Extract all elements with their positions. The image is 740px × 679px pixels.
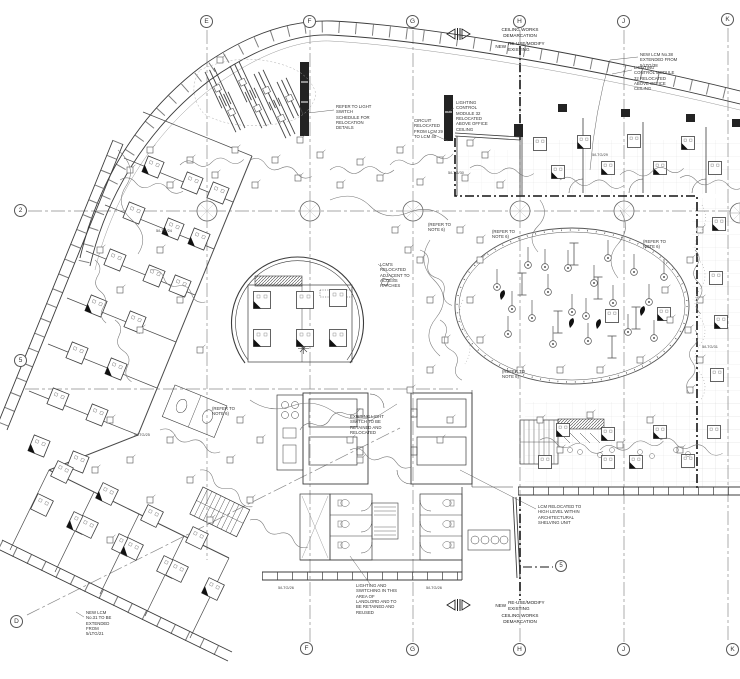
grid-bubble-bottom-j: J [617, 643, 630, 656]
floor-plan-sheet: E F G H J K F G H J K 2 5 D 5 CEILING WO… [0, 0, 740, 679]
note-new-lcm31: NEW LCM No.31 TO BE EXTENDED FROM 5/LTG/… [86, 610, 116, 637]
grid-bubble-top-k: K [721, 13, 734, 26]
circuit-label-g: 5/LTG/30 [448, 170, 464, 175]
grid-bubble-top-f: F [303, 15, 316, 28]
note-switch-schedule: REFER TO LIGHT SWITCH SCHEDULE FOR RELOC… [336, 104, 376, 131]
new-label: NEW [495, 44, 506, 49]
demarcation-title-bottom-2: DEMARCATION [503, 619, 537, 624]
note-lcm-office-left: LIGHTING CONTROL MODULE 32 RELOCATED ABO… [456, 100, 494, 132]
existing-label: EXISTING [508, 47, 545, 53]
note-landlord: LIGHTING AND SWITCHING IN THIS AREA OF L… [356, 583, 398, 615]
grid-bubble-bottom-g: G [406, 643, 419, 656]
circuit-label-a: 5/LTG/29 [592, 152, 608, 157]
grid-bubble-bottom-f: F [300, 642, 313, 655]
facade-west-wing [0, 140, 232, 661]
demarcation-arrows-icon [445, 27, 471, 41]
demarcation-title-2: DEMARCATION [503, 33, 537, 38]
circuit-label-f: 5/LTG/25 [134, 432, 150, 437]
circuit-label-b: 5/LTG/26 [278, 585, 294, 590]
circuit-wiring [92, 150, 740, 550]
floor-plan-svg [0, 0, 740, 679]
linear-fixtures-cluster [194, 59, 316, 138]
note-existing-switch: EXISTING LIGHT SWITCH TO BE RETAINED AND… [350, 414, 384, 435]
note-refer6-2: (REFER TO NOTE 6) [492, 229, 524, 240]
note-refer6-4: (REFER TO NOTE 6) [502, 369, 534, 380]
note-lcm-shelving: LCM RELOCATED TO HIGH LEVEL WITHIN ARCHI… [538, 504, 584, 525]
grid-bubble-bottom-k: K [726, 643, 739, 656]
circuit-label-d: 5/LTG/24 [156, 228, 172, 233]
circuit-label-e: 5/LTG/31 [702, 344, 718, 349]
note-refer6-3: (REFER TO NOTE 6) [643, 239, 675, 250]
section-marker-5: 5 [555, 560, 567, 572]
grid-bubble-top-g: G [406, 15, 419, 28]
reuse-label: RE-USE/MODIFY [508, 41, 545, 46]
drum-room-luminaires [254, 290, 347, 347]
note-lcms-hatches: LCM'S RELOCATED ADJACENT TO ACCESS HATCH… [380, 262, 414, 289]
grid-bubble-top-j: J [617, 15, 630, 28]
circuit-label-c: 5/LTG/26 [426, 585, 442, 590]
drum-room [232, 257, 364, 363]
grid-bubble-left-5: 5 [14, 354, 27, 367]
toilets [300, 390, 513, 560]
existing-label-bottom: EXISTING [508, 606, 545, 612]
demarcation-title-bottom: CEILING WORKS [501, 613, 538, 618]
demarcation-bottom: NEW RE-USE/MODIFY EXISTING CEILING WORKS… [445, 598, 595, 625]
demarcation-arrows-icon-bottom [445, 598, 471, 612]
note-lcm-office-right: LIGHTING CONTROL MODULE 32 RELOCATED ABO… [634, 65, 676, 92]
demarcation-top: CEILING WORKS DEMARCATION NEW RE-USE/MOD… [445, 27, 595, 54]
grid-bubble-left-2: 2 [14, 204, 27, 217]
note-refer6-5: (REFER TO NOTE 6) [212, 406, 244, 417]
note-refer6-1: (REFER TO NOTE 6) [428, 222, 460, 233]
grid-bubble-bottom-h: H [513, 643, 526, 656]
grid-bubble-top-e: E [200, 15, 213, 28]
note-circuit-relocated: CIRCUIT RELOCATED FROM LCM 29 TO LCM 40 [414, 118, 448, 139]
demarcation-title: CEILING WORKS [501, 27, 538, 32]
west-wing-luminaires [28, 156, 229, 600]
facade-south [262, 487, 740, 580]
grid-bubble-left-d: D [10, 615, 23, 628]
columns [197, 201, 740, 223]
new-label-bottom: NEW [495, 603, 506, 608]
reuse-label-bottom: RE-USE/MODIFY [508, 600, 545, 605]
